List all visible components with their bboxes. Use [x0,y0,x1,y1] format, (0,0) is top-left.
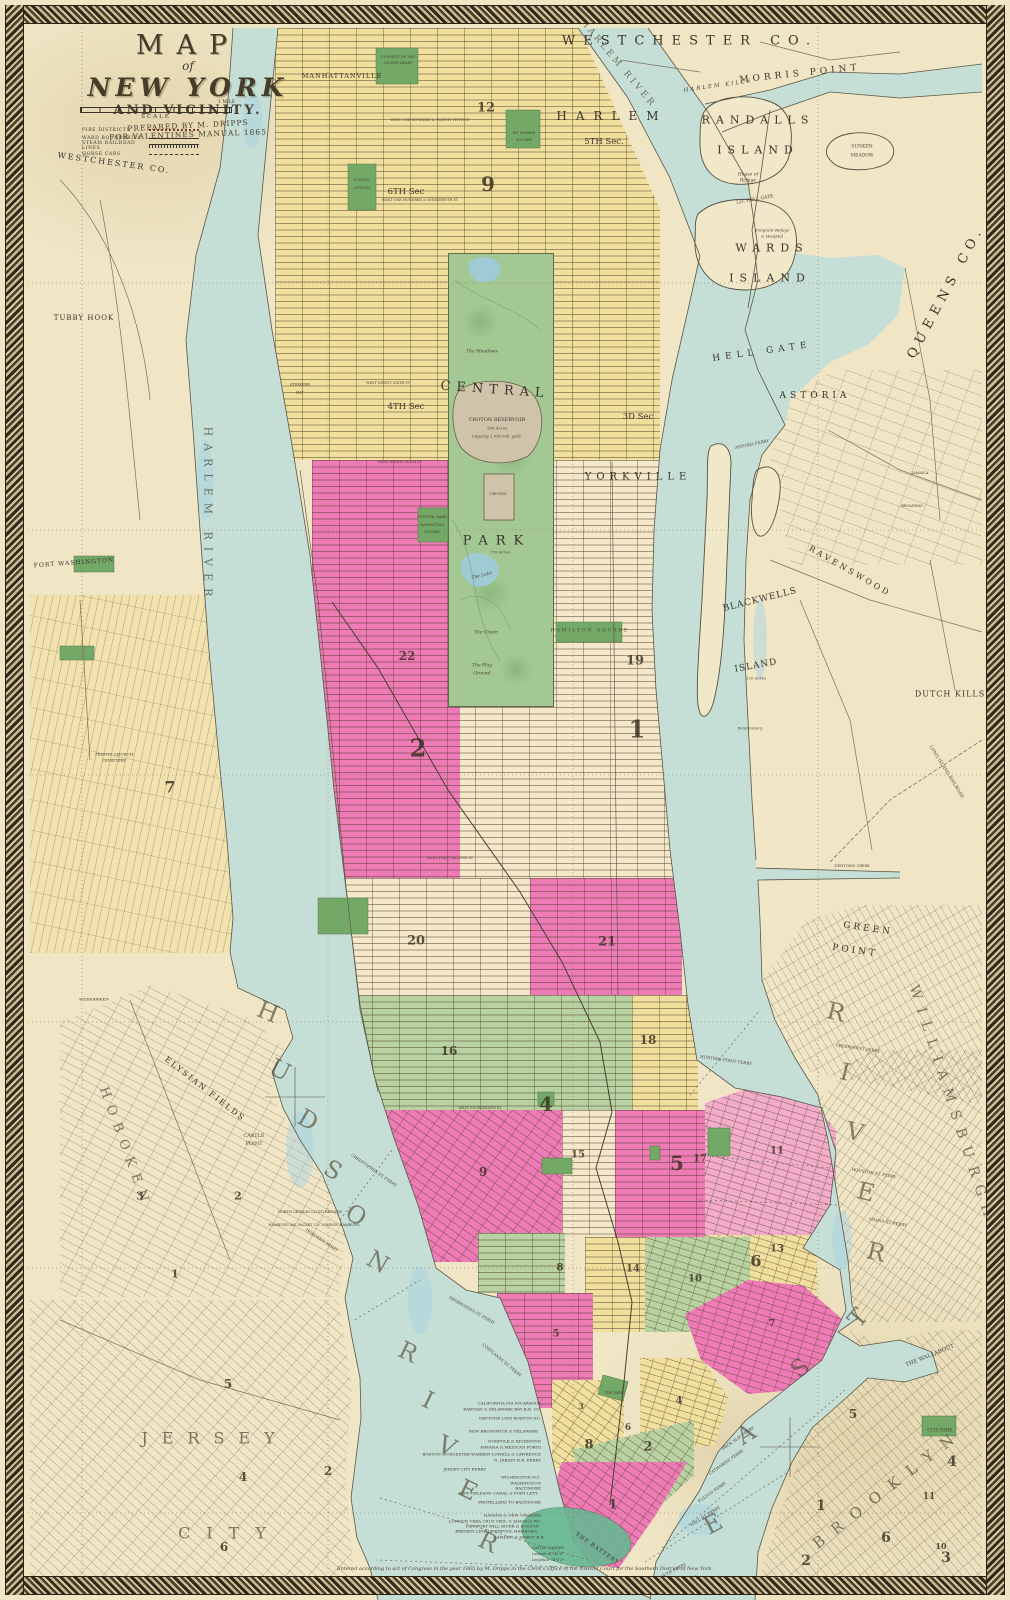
scale-mile-label: 1 MILE [218,100,235,105]
wards-island [695,199,797,289]
hamilton-square [556,622,622,642]
legend-line-sample [149,129,199,131]
railroads [300,462,982,1092]
ward22-green [318,898,368,934]
legend-item: STEAM RAILROAD LINES [82,142,199,150]
legend-line-sample [149,138,199,139]
legend-item-label: WARD BOUNDARIES [82,136,144,141]
legend: FIRE DISTRICTSWARD BOUNDARIESSTEAM RAILR… [82,126,199,158]
heights-green-2 [60,646,94,660]
border-frame-top [5,5,1005,24]
croton-reservoir [453,381,542,463]
sunken-meadow-island [826,133,893,170]
map-title-name: NEW YORK [62,73,314,102]
tompkins-square [708,1128,730,1156]
scale-label: SCALE [141,114,171,120]
harlem-meer [469,257,501,282]
scale-bar: SCALE 1 MILE [80,107,232,113]
legend-line-sample [149,144,199,148]
sacred-heart-grounds [376,48,418,84]
legend-item: FIRE DISTRICTS [82,126,199,134]
park-features [452,257,542,660]
old-croton-reservoir [484,474,514,520]
map-title-word: MAP [62,30,314,61]
border-frame-bottom [5,1576,1005,1595]
the-lake [461,553,499,587]
legend-item: HORSE CARS [82,150,199,158]
city-park-brooklyn [922,1416,956,1436]
border-frame-right [986,5,1005,1595]
heights-green-1 [74,556,114,572]
legend-item-label: STEAM RAILROAD LINES [82,141,144,151]
stuyvesant-square [650,1146,660,1160]
legend-line-sample [149,154,199,155]
map-canvas: MAP of NEW YORK AND VICINITY. PREPARED B… [0,0,1010,1600]
water-bodies [186,28,982,1600]
legend-item-label: FIRE DISTRICTS [82,128,144,133]
east-river [650,248,938,1600]
hudson-harlem-river [186,28,655,1600]
manhattan-square [418,508,448,542]
legend-item-label: HORSE CARS [82,152,144,157]
madison-square [538,1092,554,1106]
title-block: MAP of NEW YORK AND VICINITY. PREPARED B… [62,30,314,139]
border-frame-left [5,5,24,1595]
map-title-of: of [62,59,314,73]
lunatic-asylum-grounds [348,164,376,210]
mt-morris-square [506,110,540,148]
map-art [0,0,1010,1600]
washington-square [542,1158,572,1174]
